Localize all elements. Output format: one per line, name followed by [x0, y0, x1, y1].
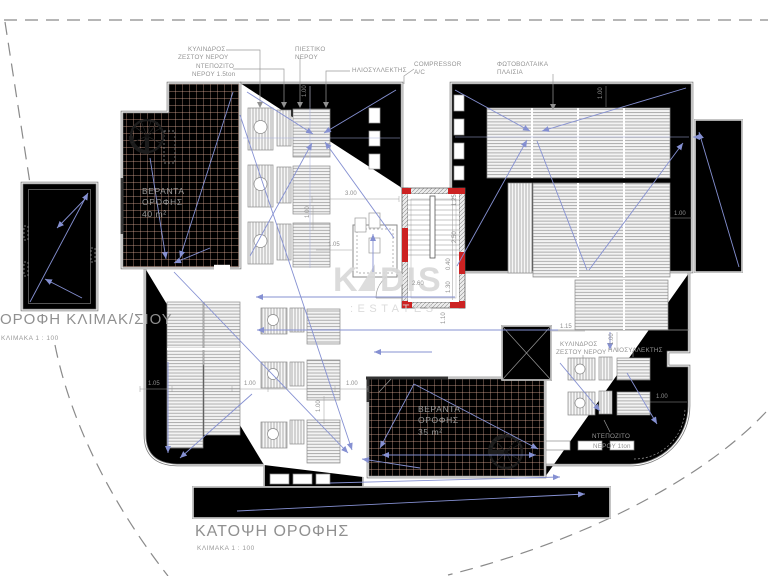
dim-0-40: 0.40 — [446, 258, 452, 270]
roof-plan-sheet: K DIS :ESTATES — [0, 0, 768, 576]
veranda-40-solid-wall — [121, 178, 124, 234]
label-pressure-line2: ΝΕΡΟΥ — [295, 54, 318, 61]
dim-1-00: 1.00 — [244, 381, 256, 387]
stairwell-roof-plan — [22, 183, 97, 310]
veranda-40 — [121, 83, 240, 270]
label-compressor-line2: A/C — [414, 69, 425, 76]
label-solar-collector-br: ΗΛΙΟΣΥΛΛΕΚΤΗΣ — [608, 347, 663, 354]
equipment-rows-bottom — [261, 308, 340, 484]
dim-1-05: 1.05 — [148, 381, 160, 387]
main-plan-scale: ΚΛΙΜΑΚΑ 1 : 100 — [197, 545, 255, 552]
dim-1-25: 1.25 — [452, 194, 458, 206]
veranda-35 — [366, 378, 545, 477]
label-solar-collector: ΗΛΙΟΣΥΛΛΕΚΤΗΣ — [352, 67, 407, 74]
roof-plan-drawing: K DIS :ESTATES — [0, 0, 768, 576]
watermark-dis: DIS — [380, 261, 443, 299]
label-cylinder-line1: ΚΥΛΙΝΔΡΟΣ — [188, 46, 225, 53]
label-tank1t-line1: ΝΤΕΠΟΖΙΤΟ — [592, 433, 630, 440]
hot-water-cylinder — [261, 308, 340, 344]
skylight-box — [502, 326, 551, 380]
main-plan-title: ΚΑΤΟΨΗ ΟΡΟΦΗΣ — [195, 523, 349, 540]
dim-1-00: 1.00 — [302, 85, 308, 97]
hot-water-cylinder — [248, 108, 330, 157]
hot-water-cylinder — [261, 420, 340, 463]
dim-1-15: 1.15 — [560, 324, 572, 330]
dim-1-00: 1.00 — [346, 381, 358, 387]
dim-1-00: 1.00 — [598, 87, 604, 99]
dim-1-00: 1.00 — [609, 333, 615, 345]
label-pv-line2: ΠΛΑΙΣΙΑ — [497, 69, 524, 76]
label-cylinder-line2: ΖΕΣΤΟΥ ΝΕΡΟΥ — [178, 54, 229, 61]
dim-1-00: 1.00 — [656, 394, 668, 400]
left-plan-scale: ΚΛΙΜΑΚΑ 1 : 100 — [1, 335, 59, 342]
veranda-40-area: 40 m² — [142, 209, 167, 219]
strip-vents — [270, 474, 330, 484]
dim-1-30: 1.30 — [446, 281, 452, 293]
watermark-estates: :ESTATES — [350, 303, 438, 315]
hot-water-cylinder — [568, 357, 650, 380]
veranda-35-label-line2: ΟΡΟΦΗΣ — [418, 415, 459, 425]
dim-2-50: 2.50 — [452, 231, 458, 243]
label-tank15-line1: ΝΤΕΠΟΖΙΤΟ — [196, 63, 234, 70]
label-pv-line1: ΦΩΤΟΒΟΛΤΑΙΚΑ — [497, 61, 549, 68]
left-plan-title: ΟΡΟΦΗ ΚΛΙΜΑΚ/ΣΙΟΥ — [0, 311, 173, 328]
label-tank15-line2: ΝΕΡΟΥ 1.5ton — [192, 71, 236, 78]
dim-1-00: 1.00 — [316, 400, 322, 412]
watermark-k: K — [333, 261, 360, 299]
label-pressure-line1: ΠΙΕΣΤΙΚΟ — [295, 46, 326, 53]
dim-1-00: 1.00 — [674, 211, 686, 217]
veranda-40-label-line2: ΟΡΟΦΗΣ — [142, 197, 183, 207]
dim-2-60: 2.60 — [412, 281, 424, 287]
dim-1-05: 1.05 — [328, 242, 340, 248]
dim-1-10: 1.10 — [441, 312, 447, 324]
label-compressor-line1: COMPRESSOR — [414, 61, 462, 68]
dim-1-00: 1.00 — [305, 206, 311, 218]
hot-water-cylinder — [248, 165, 330, 214]
dim-3-00: 3.00 — [345, 191, 357, 197]
watermark: K DIS :ESTATES — [333, 261, 443, 315]
label-tank1t-line2: ΝΕΡΟΥ 1ton — [593, 443, 631, 450]
veranda-35-area: 35 m² — [418, 427, 443, 437]
label-cylinder-br-line2: ΖΕΣΤΟΥ ΝΕΡΟΥ — [556, 349, 607, 356]
label-cylinder-br-line1: ΚΥΛΙΝΔΡΟΣ — [560, 341, 597, 348]
hot-water-cylinder — [568, 391, 650, 415]
veranda-40-label-line1: ΒΕΡΑΝΤΑ — [142, 186, 185, 196]
veranda-35-label-line1: ΒΕΡΑΝΤΑ — [418, 404, 461, 414]
